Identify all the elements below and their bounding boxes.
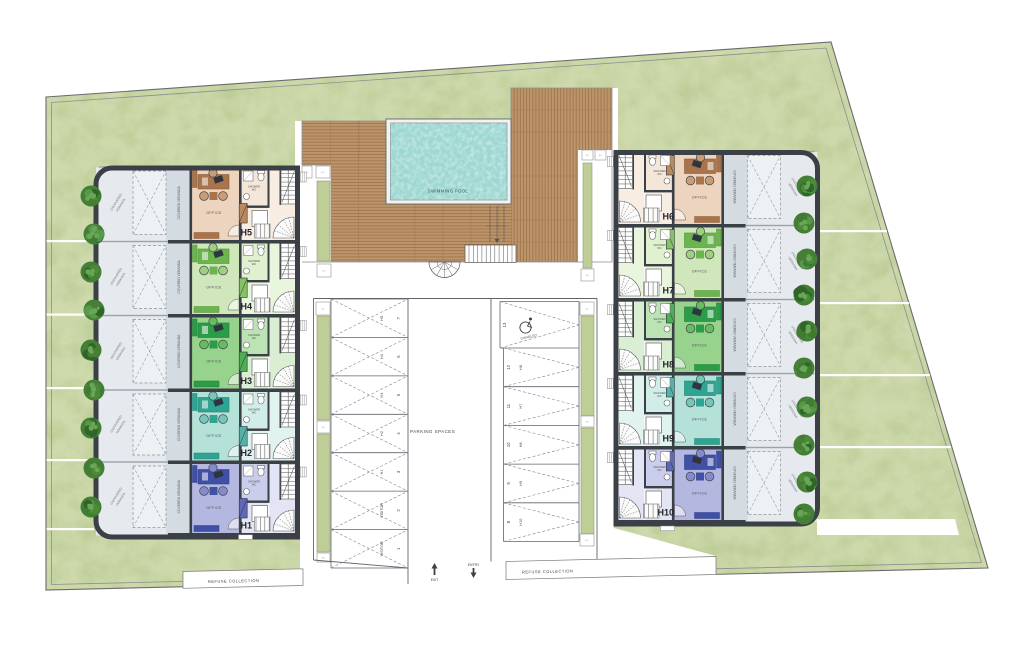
svg-text:13: 13: [502, 322, 507, 327]
svg-text:OFFICE: OFFICE: [692, 344, 708, 348]
svg-text:OFFICE: OFFICE: [206, 211, 222, 215]
svg-text:H7: H7: [662, 286, 674, 296]
svg-text:VISITOR: VISITOR: [380, 503, 384, 518]
svg-text:H4: H4: [241, 302, 253, 312]
svg-text:SWIMMING POOL: SWIMMING POOL: [428, 189, 469, 194]
svg-text:WC: WC: [252, 483, 257, 487]
svg-text:H2: H2: [241, 448, 253, 458]
svg-text:H10: H10: [657, 508, 674, 518]
svg-text:H3: H3: [380, 393, 384, 398]
svg-text:WC: WC: [657, 246, 662, 250]
svg-text:OFFICE: OFFICE: [692, 270, 708, 274]
svg-text:OFFICE: OFFICE: [692, 418, 708, 422]
svg-text:WC: WC: [657, 394, 662, 398]
svg-text:H3: H3: [241, 376, 253, 386]
svg-text:OFFICE: OFFICE: [206, 286, 222, 290]
svg-text:COVERED VERANDA: COVERED VERANDA: [733, 170, 737, 204]
svg-text:H2: H2: [380, 431, 384, 436]
svg-text:12: 12: [506, 364, 511, 369]
svg-text:EXIT: EXIT: [431, 578, 439, 582]
svg-text:H1: H1: [241, 521, 253, 531]
svg-text:H1: H1: [380, 469, 384, 474]
svg-text:H8: H8: [662, 360, 674, 370]
svg-text:WC: WC: [252, 188, 257, 192]
svg-text:WC: WC: [657, 468, 662, 472]
svg-text:ENTRY: ENTRY: [468, 563, 480, 567]
svg-text:COVERED VERANDA: COVERED VERANDA: [733, 318, 737, 352]
svg-text:H7: H7: [519, 404, 523, 409]
svg-text:H6: H6: [519, 365, 523, 370]
svg-text:OFFICE: OFFICE: [692, 196, 708, 200]
svg-text:OFFICE: OFFICE: [206, 360, 222, 364]
svg-text:COVERED VERANDA: COVERED VERANDA: [177, 260, 181, 294]
svg-text:OFFICE: OFFICE: [206, 434, 222, 438]
svg-text:WC: WC: [657, 172, 662, 176]
svg-text:COVERED VERANDA: COVERED VERANDA: [177, 479, 181, 513]
svg-text:H4: H4: [380, 354, 384, 359]
svg-text:11: 11: [506, 403, 511, 408]
svg-text:H10: H10: [519, 519, 523, 526]
svg-text:H8: H8: [519, 442, 523, 447]
svg-text:COVERED VERANDA: COVERED VERANDA: [733, 392, 737, 426]
svg-text:OFFICE: OFFICE: [206, 506, 222, 510]
svg-text:WC: WC: [657, 320, 662, 324]
svg-text:OFFICE: OFFICE: [692, 492, 708, 496]
svg-text:WC: WC: [252, 411, 257, 415]
svg-text:WC: WC: [252, 262, 257, 266]
svg-text:PARKING SPACES: PARKING SPACES: [410, 429, 455, 434]
svg-text:H9: H9: [519, 481, 523, 486]
svg-text:COVERED VERANDA: COVERED VERANDA: [177, 185, 181, 219]
svg-text:VISITOR: VISITOR: [380, 541, 384, 556]
svg-text:COVERED VERANDA: COVERED VERANDA: [733, 244, 737, 278]
svg-text:10: 10: [506, 442, 511, 447]
svg-text:COVERED VERANDA: COVERED VERANDA: [177, 407, 181, 441]
svg-text:H5: H5: [380, 316, 384, 321]
svg-text:WC: WC: [252, 336, 257, 340]
svg-text:H6: H6: [662, 212, 674, 222]
svg-text:COVERED VERANDA: COVERED VERANDA: [733, 466, 737, 500]
svg-text:COVERED VERANDA: COVERED VERANDA: [177, 334, 181, 368]
svg-text:H9: H9: [662, 434, 674, 444]
svg-text:H5: H5: [241, 228, 253, 238]
